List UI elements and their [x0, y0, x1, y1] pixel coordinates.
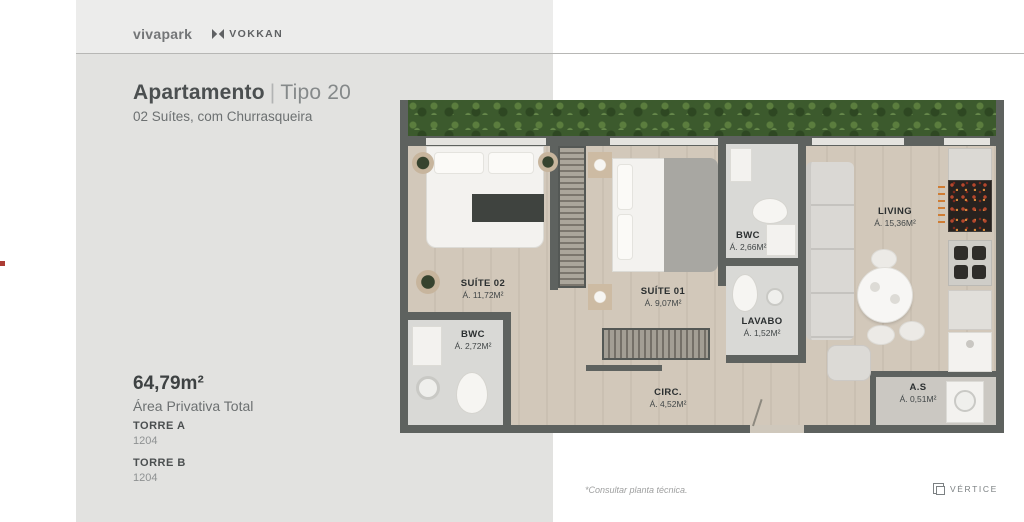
wall-outer-left — [400, 100, 408, 433]
wall-outer-bottom-left — [400, 425, 750, 433]
tower-b-unit: 1204 — [133, 472, 186, 484]
wall-lavabo-bottom — [726, 355, 798, 363]
room-label-circulacao: CIRC. Á. 4,52M² — [608, 387, 728, 409]
window-living-left — [812, 138, 904, 145]
table-plate — [870, 282, 880, 292]
room-label-suite-01: SUÍTE 01 Á. 9,07M² — [603, 286, 723, 308]
room-area: Á. 0,51M² — [888, 394, 948, 404]
room-name: BWC — [428, 329, 518, 340]
sofa — [806, 162, 854, 340]
room-name: BWC — [706, 230, 790, 241]
wall-outer-right — [996, 100, 1004, 433]
window-suite-01 — [610, 138, 718, 145]
room-name: A.S — [888, 382, 948, 393]
vertice-logo-icon-inner — [936, 486, 945, 495]
vokkan-logo: VOKKAN — [212, 28, 283, 40]
title-variant: Tipo 20 — [280, 81, 351, 104]
tower-a-unit: 1204 — [133, 435, 185, 447]
room-area: Á. 9,07M² — [603, 298, 723, 308]
wardrobe-closet — [558, 146, 586, 288]
washer-drum-icon — [954, 390, 976, 412]
private-area-block: 64,79m² Área Privativa Total — [133, 373, 253, 414]
bathroom-vanity — [730, 148, 752, 182]
title-main: Apartamento — [133, 81, 265, 104]
room-area: Á. 2,72M² — [428, 341, 518, 351]
entrance-door-opening — [750, 425, 804, 433]
room-label-living: LIVING Á. 15,36M² — [835, 206, 955, 228]
stove-burner — [972, 265, 986, 279]
window-suite-02 — [426, 138, 546, 145]
room-label-lavabo: LAVABO Á. 1,52M² — [720, 316, 804, 338]
technical-note: *Consultar planta técnica. — [585, 485, 688, 495]
wall-suite-01-bottom — [586, 365, 662, 371]
red-marker — [0, 261, 5, 266]
pillow — [617, 214, 633, 260]
room-area: Á. 4,52M² — [608, 399, 728, 409]
room-name: SUÍTE 01 — [603, 286, 723, 297]
room-label-area-servico: A.S Á. 0,51M² — [888, 382, 948, 404]
bed-blanket — [664, 158, 718, 272]
vokkan-logo-text: VOKKAN — [229, 28, 283, 40]
garden-hedge — [408, 100, 996, 138]
tower-b-block: TORRE B 1204 — [133, 457, 186, 484]
wall-suite-01-right — [718, 144, 726, 286]
vertice-logo-icon — [933, 483, 944, 494]
plant-pot — [412, 152, 434, 174]
bed-throw — [472, 194, 544, 222]
room-name: CIRC. — [608, 387, 728, 398]
area-label: Área Privativa Total — [133, 398, 253, 414]
dining-chair — [900, 322, 924, 340]
stove-burner — [954, 265, 968, 279]
tower-a-block: TORRE A 1204 — [133, 420, 185, 447]
stove-burner — [972, 246, 986, 260]
stove-burner — [954, 246, 968, 260]
dining-chair — [872, 250, 896, 268]
toilet — [732, 274, 758, 312]
room-area: Á. 1,52M² — [720, 328, 804, 338]
room-name: SUÍTE 02 — [423, 278, 543, 289]
vertice-logo-text: VÉRTICE — [950, 484, 998, 494]
kitchen-sink — [948, 332, 992, 372]
plant-pot — [538, 152, 558, 172]
wall-bwc-01-bottom — [726, 258, 798, 266]
title-separator: | — [265, 81, 281, 104]
dining-chair — [868, 326, 894, 344]
floorplan: SUÍTE 02 Á. 11,72M² BWC Á. 2,72M² SUÍTE … — [400, 100, 1004, 433]
area-value: 64,79m² — [133, 373, 253, 395]
title-subtitle: 02 Suítes, com Churrasqueira — [133, 109, 351, 124]
room-label-bwc-suite-02: BWC Á. 2,72M² — [428, 329, 518, 351]
window-living-right — [944, 138, 990, 145]
ottoman — [828, 346, 870, 380]
title-block: Apartamento|Tipo 20 02 Suítes, com Churr… — [133, 81, 351, 124]
sink — [766, 288, 784, 306]
room-name: LAVABO — [720, 316, 804, 327]
pillow — [617, 164, 633, 210]
dining-table — [858, 268, 912, 322]
brand-row: vivapark VOKKAN — [133, 26, 283, 42]
nightstand — [588, 152, 612, 178]
room-area: Á. 15,36M² — [835, 218, 955, 228]
shower-drain — [416, 376, 440, 400]
bedroom-dresser — [602, 328, 710, 360]
toilet — [752, 198, 788, 224]
toilet — [456, 372, 488, 414]
kitchen-counter — [948, 290, 992, 330]
room-area: Á. 2,66M² — [706, 242, 790, 252]
room-label-bwc-suite-01: BWC Á. 2,66M² — [706, 230, 790, 252]
vokkan-x-icon — [212, 29, 224, 39]
vivapark-logo: vivapark — [133, 26, 192, 42]
tower-a-name: TORRE A — [133, 420, 185, 432]
wall-outer-bottom-right — [804, 425, 1004, 433]
wall-bwc-02-top — [408, 312, 503, 320]
room-area: Á. 11,72M² — [423, 290, 543, 300]
table-plate — [890, 294, 900, 304]
pillow — [434, 152, 484, 174]
room-label-suite-02: SUÍTE 02 Á. 11,72M² — [423, 278, 543, 300]
tower-b-name: TORRE B — [133, 457, 186, 469]
pillow — [488, 152, 534, 174]
slide: vivapark VOKKAN Apartamento|Tipo 20 02 S… — [0, 0, 1024, 522]
faucet — [966, 340, 974, 348]
page-title: Apartamento|Tipo 20 — [133, 81, 351, 105]
header-divider — [76, 53, 1024, 54]
vertice-logo: VÉRTICE — [933, 483, 998, 494]
wall-service-left — [870, 377, 876, 425]
room-name: LIVING — [835, 206, 955, 217]
